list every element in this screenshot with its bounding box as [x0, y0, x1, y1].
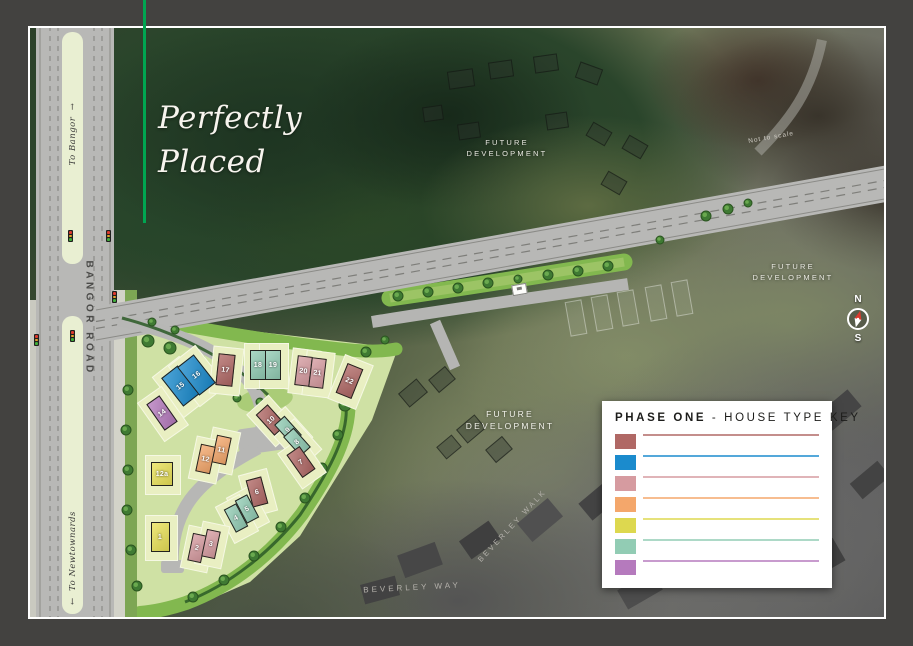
- house-color-swatch: [615, 539, 636, 554]
- site-number: 5: [243, 505, 250, 513]
- house-color-swatch: [615, 434, 636, 449]
- legend-entry-warwick: [615, 495, 819, 512]
- legend-entry-mclenaghan: [615, 516, 819, 533]
- house-site-18: 18: [250, 350, 266, 380]
- to-bangor-label: To Bangor →: [68, 74, 78, 194]
- future-house-outline: [447, 68, 475, 89]
- house-site-19: 19: [265, 350, 281, 380]
- site-number: 15: [175, 381, 186, 392]
- site-number: 1: [158, 534, 162, 541]
- future-house-outline: [422, 104, 444, 122]
- compass-north-label: N: [844, 294, 872, 305]
- site-number: 4: [232, 514, 239, 522]
- house-color-swatch: [615, 455, 636, 470]
- bangor-road-label: BANGOR ROAD: [84, 261, 95, 357]
- future-house-outline: [488, 59, 514, 79]
- house-site-1: 1: [151, 522, 170, 552]
- future-development-label-right: FUTUREDEVELOPMENT: [728, 238, 858, 283]
- compass-icon: [845, 306, 871, 332]
- legend-entry-mayne: [615, 432, 819, 449]
- page-frame: Perfectly Placed To Bangor → BANGOR ROAD…: [0, 0, 913, 646]
- site-number: 11: [216, 446, 225, 455]
- house-color-swatch: [615, 560, 636, 575]
- future-development-label-center: FUTUREDEVELOPMENT: [445, 382, 575, 433]
- site-number: 21: [312, 369, 321, 377]
- hero-title: Perfectly Placed: [158, 96, 302, 184]
- site-number: 19: [269, 362, 277, 369]
- brand-green-rule: [143, 0, 146, 223]
- site-number: 3: [208, 540, 214, 548]
- traffic-light-icon: [70, 330, 75, 342]
- compass: N S: [844, 294, 872, 344]
- site-number: 6: [254, 488, 260, 496]
- house-type-key-panel: PHASE ONE - HOUSE TYPE KEY: [602, 401, 832, 588]
- site-number: 7: [297, 458, 304, 466]
- to-newtownards-label: ← To Newtownards: [68, 491, 78, 619]
- hero-line2: Placed: [158, 140, 302, 184]
- house-site-17: 17: [215, 353, 235, 387]
- arrow-icon: →: [68, 103, 78, 111]
- house-color-swatch: [615, 518, 636, 533]
- compass-south-label: S: [844, 333, 872, 344]
- legend-title: PHASE ONE - HOUSE TYPE KEY: [615, 412, 819, 424]
- traffic-light-icon: [106, 230, 111, 242]
- arrow-icon: ←: [68, 597, 78, 605]
- site-number: 18: [254, 362, 262, 369]
- future-house-outline: [533, 53, 559, 73]
- site-number: 14: [157, 408, 168, 419]
- traffic-light-icon: [112, 291, 117, 303]
- site-number: 8: [293, 438, 301, 446]
- future-development-label-top: FUTUREDEVELOPMENT: [442, 114, 572, 159]
- hero-line1: Perfectly: [158, 96, 302, 140]
- main-road-surface: [96, 40, 886, 340]
- legend-rows: [615, 432, 819, 575]
- legend-entry-legge: [615, 537, 819, 554]
- house-color-swatch: [615, 497, 636, 512]
- house-site-12a: 12a: [151, 462, 173, 486]
- site-number: 20: [298, 367, 307, 375]
- house-color-swatch: [615, 476, 636, 491]
- traffic-light-icon: [34, 334, 39, 346]
- site-number: 16: [191, 370, 202, 381]
- site-number: 12: [200, 455, 210, 464]
- site-number: 22: [344, 376, 354, 386]
- house-site-21: 21: [308, 357, 327, 389]
- site-number: 12a: [156, 471, 169, 478]
- site-number: 17: [220, 366, 229, 374]
- legend-entry-bleakley: [615, 453, 819, 470]
- traffic-light-icon: [68, 230, 73, 242]
- site-number: 2: [194, 544, 200, 552]
- legend-entry-colville: [615, 474, 819, 491]
- legend-entry-earl: [615, 558, 819, 575]
